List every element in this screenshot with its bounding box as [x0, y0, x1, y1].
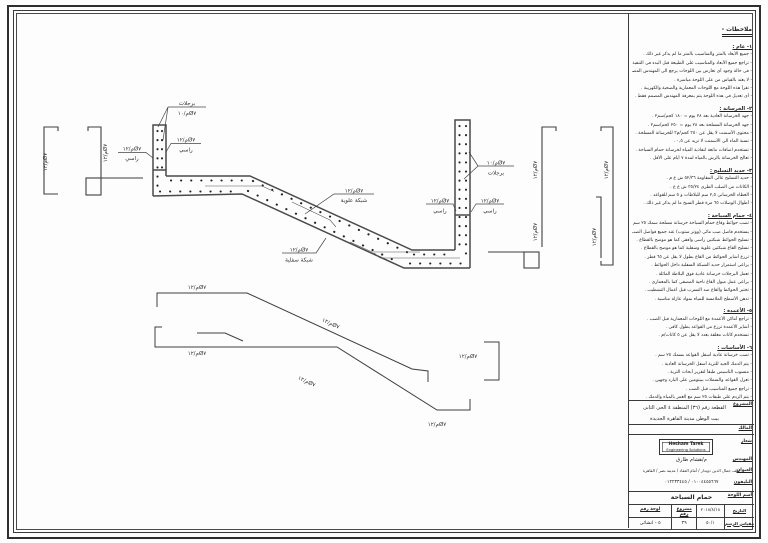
- notes-panel: ملاحظات - ١- عام : - جميع الأبعاد بالمتر…: [632, 16, 752, 403]
- title-block: المشروع القطعة رقم (٣٦) المنطقة ٤ الحى ا…: [629, 400, 754, 531]
- scale-label: مقياس الرسم: [725, 518, 754, 530]
- note-line: - منسوب التأسيس طبقاً لتقرير أبحاث الترب…: [632, 369, 752, 377]
- note-line: - أشاير الأعمدة تزرع من القواعد بطول كاف…: [632, 324, 752, 332]
- sheet-no-value: ٥ - انشائى: [629, 518, 671, 531]
- note-line: - يراعى عمل ميول القاع ناحية المصفى كما …: [632, 279, 752, 287]
- date-row: ٢٠١٨/٨/١٨ التاريخ: [697, 505, 754, 518]
- sheet-name-row: أسم اللوحة حمام السباحة: [629, 491, 754, 504]
- note-line: - تسليح القاع شبكتين علوية وسفلية كما هو…: [632, 245, 752, 253]
- sheet-no-cell: لوحة رقم ٥ - انشائى: [629, 505, 672, 530]
- note-line: - تدهن الأسطح الملامسة للمياه بمواد عازل…: [632, 296, 752, 304]
- logo-line2: Engineering Solutions: [660, 448, 712, 452]
- firm-row: شعار Hesham Tarek Engineering Solutions …: [629, 434, 754, 491]
- owner-row: المالك: [629, 424, 754, 434]
- notes-title: ملاحظات -: [722, 27, 752, 37]
- sheet-no-label: لوحة رقم: [629, 505, 671, 518]
- note-line: ٥- الأعمدة :: [632, 307, 752, 315]
- note-line: - تراجع جميع الأبعاد والمناسيب على الطبي…: [632, 60, 752, 68]
- scale-row: ٥٠/١ مقياس الرسم: [697, 518, 754, 530]
- note-line: ٤- حمام السباحة :: [632, 212, 752, 220]
- meta-row: لوحة رقم ٥ - انشائى مشروع رقم ٣٩ ٢٠١٨/٨/…: [629, 504, 754, 530]
- note-line: - تختبر الحوائط والقاع ضد التسرب قبل أعم…: [632, 287, 752, 295]
- logo-label: شعار: [741, 439, 752, 444]
- note-line: ٣- حديد التسليح :: [632, 167, 752, 175]
- note-line: - جميع الأبعاد بالمتر والمناسيب بالمتر م…: [632, 51, 752, 59]
- date-label: التاريخ: [725, 505, 754, 517]
- project-no-cell: مشروع رقم ٣٩: [672, 505, 697, 530]
- note-line: - محتوى الأسمنت لا يقل عن ٣٥٠ كجم/م٣ للخ…: [632, 130, 752, 138]
- sheet-name-label: أسم اللوحة: [728, 493, 752, 498]
- note-line: - يتم الدمك الجيد للتربة أسفل الخرسانة ا…: [632, 361, 752, 369]
- note-line: - تصب حوائط وقاع حمام السباحة خرسانة مسل…: [632, 220, 752, 228]
- note-line: - نسبة الماء الى الأسمنت لا تزيد عن ٠,٥ …: [632, 138, 752, 146]
- project-no-value: ٣٩: [672, 518, 696, 531]
- note-line: ٢- الخرسانة :: [632, 105, 752, 113]
- note-line: ٦- الأساسات :: [632, 344, 752, 352]
- date-value: ٢٠١٨/٨/١٨: [697, 505, 725, 517]
- date-scale-cell: ٢٠١٨/٨/١٨ التاريخ ٥٠/١ مقياس الرسم: [697, 505, 754, 530]
- note-line: - الغطاء الخرسانى ٢,٥ سم للبلاطات و ٥ سم…: [632, 192, 752, 200]
- scale-value: ٥٠/١: [697, 518, 725, 530]
- note-line: - تراجع أماكن الأعمدة مع اللوحات المعمار…: [632, 316, 752, 324]
- phone: ٠١٠٠٤٤٥٥٦٦٧ / ٠١٢٢٣٣٤٤٥: [629, 480, 754, 485]
- project-label: المشروع: [733, 402, 752, 407]
- notes-list: ١- عام : - جميع الأبعاد بالمتر والمناسيب…: [632, 43, 752, 403]
- note-line: - تصب خرسانة عادية أسفل القواعد بسمك ٢٥ …: [632, 352, 752, 360]
- note-line: - حديد التسليح عالى المقاومة ٥٢/٣٦ ش ع م…: [632, 175, 752, 183]
- note-line: - جهد الخرسانة العادية بعد ٢٨ يوم = ١٨٠ …: [632, 113, 752, 121]
- firm-logo: Hesham Tarek Engineering Solutions: [659, 439, 713, 455]
- note-line: ١- عام :: [632, 43, 752, 51]
- note-line: - تراجع جميع المناسيب قبل الصب .: [632, 386, 752, 394]
- note-line: - فى حالة وجود أى تعارض بين اللوحات يرجع…: [632, 68, 752, 76]
- note-line: - تقرأ هذه اللوحة مع اللوحات المعمارية و…: [632, 85, 752, 93]
- note-line: - تعمل البرجلات خرسانة عادية فوق البلاطة…: [632, 271, 752, 279]
- note-line: - تعالج الخرسانة بالرش بالمياه لمدة ٧ أي…: [632, 155, 752, 163]
- owner-label: المالك: [739, 426, 752, 431]
- engineer-name: م/هشام طارق: [629, 457, 754, 463]
- note-line: - تزرع أشاير الحوائط من القاع بطول لا يق…: [632, 254, 752, 262]
- note-line: - لا يعتد بالقياس من على اللوحة مباشرة .: [632, 77, 752, 85]
- note-line: - جهد الخرسانة المسلحة بعد ٢٨ يوم = ٢٥٠ …: [632, 122, 752, 130]
- note-line: - يراعى استمرار حديد الشبكة السفلية داخل…: [632, 262, 752, 270]
- address: خلف جمال الدين دويدار / أمام العقاد / مد…: [629, 468, 754, 473]
- project-line2: بيت الوطن مدينة القاهرة الجديدة: [629, 412, 754, 423]
- note-line: - الكانات من الصلب الطرى ٣٥/٢٤ ش ع ع .: [632, 184, 752, 192]
- note-line: - أى تعديل فى هذه اللوحة يتم بمعرفة المه…: [632, 93, 752, 101]
- note-line: - تسليح الحوائط شبكتين رأسى وأفقى كما هو…: [632, 237, 752, 245]
- note-line: - تعزل القواعد والسملات ببيتومين على الب…: [632, 377, 752, 385]
- note-line: - تستخدم كانات مغلقة بعدد لا يقل عن ٥ كا…: [632, 332, 752, 340]
- note-line: - يستخدم فاصل صب مائى (ووتر ستوب) عند جم…: [632, 229, 752, 237]
- project-no-label: مشروع رقم: [672, 505, 696, 518]
- note-line: - تستخدم اضافات مانعة لنفاذية المياه لخر…: [632, 147, 752, 155]
- drawing-sheet: م/١٢Ø٧ م/١٢Ø٧ م/١٢Ø٧ راسي برجلات م/١٠Ø٧ …: [0, 0, 768, 543]
- project-row: المشروع القطعة رقم (٣٦) المنطقة ٤ الحى ا…: [629, 400, 754, 424]
- note-line: - أطوال الوصلات ٦٥ مرة قطر السيخ ما لم ي…: [632, 200, 752, 208]
